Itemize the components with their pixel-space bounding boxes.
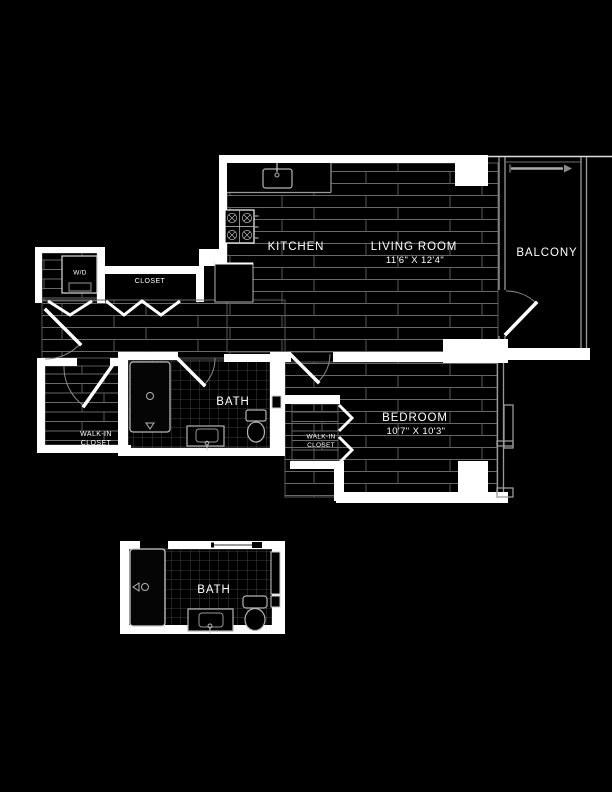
wall [35,247,42,303]
shower-icon [130,549,165,626]
wall [97,250,105,303]
wall [506,348,590,360]
wall-column [455,155,488,186]
wall [37,358,45,453]
wall [118,448,284,456]
wall [224,354,278,362]
bedroom-dimensions: 10'7" X 10'3" [387,426,446,437]
closet-label: CLOSET [135,278,166,285]
vanity-sink-icon [187,426,224,450]
bedroom-label: BEDROOM [382,412,448,424]
wall [333,352,445,362]
wall [277,395,340,404]
kitchen-island [215,263,253,302]
floor-plan-canvas: BALCONY [0,0,612,792]
wall [196,266,204,302]
walk-in-closet-label: WALK-IN [80,431,112,438]
toilet-icon [243,596,267,631]
shower-icon [130,362,170,432]
wall-niche [272,396,281,408]
vanity-sink-icon [188,609,233,634]
toilet-icon [246,410,266,442]
kitchen-label: KITCHEN [268,241,325,253]
hall-closet-area: CLOSET [135,278,166,285]
wall-niche [271,552,280,594]
bedroom-walk-in-closet-label: CLOSET [307,442,335,449]
wall [443,339,508,363]
wall [336,492,508,503]
wall [219,155,459,163]
wall [35,247,105,253]
wall-column [458,461,488,492]
wall [118,352,178,360]
balcony-label: BALCONY [516,247,577,259]
bedroom-walk-in-closet-label: WALK-IN [307,434,336,441]
living-room-dimensions: 11'6" X 12'4" [386,255,444,266]
bath-detail-label: BATH [197,584,230,596]
stove-icon [225,210,259,243]
wall [37,358,77,366]
wall [118,352,128,456]
bath-label: BATH [216,396,249,408]
wd-closet-area: W/D [62,256,97,293]
floor-plan-page: BALCONY [0,0,612,792]
wd-label: W/D [73,270,87,277]
wall-niche [271,596,280,607]
living-room-label: LIVING ROOM [371,241,458,253]
wall [120,541,129,633]
bedroom-closet-floor [292,404,338,461]
wall [99,266,204,274]
walk-in-closet-label: CLOSET [81,440,112,447]
